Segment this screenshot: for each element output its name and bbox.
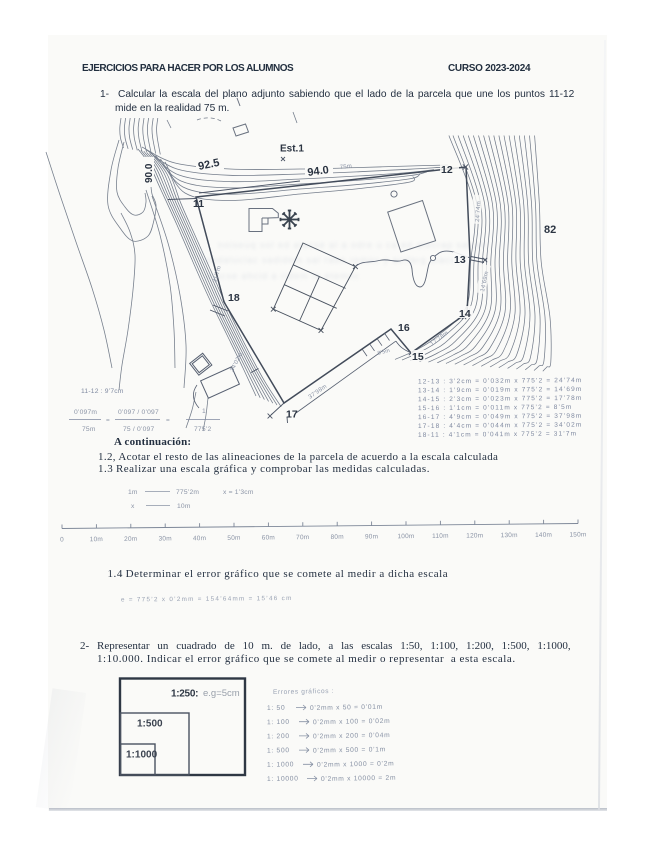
svg-text:14-15 : 2’3cm = 0’023m x 775’2: 14-15 : 2’3cm = 0’023m x 775’2 = 17’78m: [418, 395, 583, 403]
svg-text:Est.1: Est.1: [280, 144, 304, 155]
svg-text:Errores gráficos :: Errores gráficos :: [273, 688, 334, 696]
svg-text:60m: 60m: [262, 534, 275, 541]
svg-text:0’2mm x 1000 = 0’2m: 0’2mm x 1000 = 0’2m: [317, 760, 395, 768]
svg-text:80m: 80m: [330, 534, 343, 541]
svg-text:12: 12: [441, 164, 453, 176]
svg-text:150m: 150m: [569, 531, 586, 538]
svg-text:18: 18: [228, 292, 240, 304]
svg-text:24’74m: 24’74m: [475, 201, 482, 222]
svg-text:16-17 : 4’9cm = 0’049m x 775’2: 16-17 : 4’9cm = 0’049m x 775’2 = 37’98m: [418, 413, 583, 421]
svg-text:75m: 75m: [340, 164, 353, 171]
svg-text:=: =: [166, 417, 170, 424]
svg-text:20m: 20m: [124, 536, 137, 543]
svg-text:11-12 : 9’7cm: 11-12 : 9’7cm: [81, 388, 124, 395]
svg-text:31’7m: 31’7m: [212, 265, 223, 283]
svg-text:120m: 120m: [466, 532, 483, 539]
svg-text:0’2mm x 500 = 0’1m: 0’2mm x 500 = 0’1m: [313, 746, 386, 754]
svg-text:1:500: 1:500: [137, 719, 163, 730]
svg-text:18-11 : 4’1cm = 0’041m x 775’2: 18-11 : 4’1cm = 0’041m x 775’2 = 31’7m: [418, 431, 577, 439]
svg-text:10m: 10m: [90, 536, 103, 543]
svg-text:8’5m: 8’5m: [377, 348, 391, 357]
svg-text:15-16 : 1’1cm = 0’011m x 775’2: 15-16 : 1’1cm = 0’011m x 775’2 = 8’5m: [418, 404, 572, 412]
svg-text:e.g=5cm: e.g=5cm: [203, 688, 240, 699]
svg-text:11: 11: [193, 198, 204, 210]
svg-text:0’097 / 0’097: 0’097 / 0’097: [118, 409, 159, 416]
svg-text:0’2mm x 50 = 0’01m: 0’2mm x 50 = 0’01m: [310, 704, 383, 712]
svg-text:1: 50: 1: 50: [267, 705, 285, 712]
svg-text:1: 100: 1: 100: [267, 719, 290, 726]
svg-text:13-14 : 1’9cm = 0’019m x 775’2: 13-14 : 1’9cm = 0’019m x 775’2 = 14’69m: [418, 386, 583, 394]
svg-text:0’2mm x 100 = 0’02m: 0’2mm x 100 = 0’02m: [313, 718, 391, 726]
svg-text:0’097m: 0’097m: [74, 409, 97, 416]
svg-text:x = 1’3cm: x = 1’3cm: [223, 489, 254, 496]
svg-text:13: 13: [454, 254, 466, 266]
svg-text:1: 1: [202, 408, 206, 415]
svg-text:14: 14: [459, 308, 471, 320]
svg-text:100m: 100m: [397, 533, 414, 540]
svg-text:30m: 30m: [158, 535, 171, 542]
svg-text:40m: 40m: [193, 535, 206, 542]
svg-text:130m: 130m: [501, 532, 518, 539]
svg-text:82: 82: [544, 224, 556, 236]
svg-text:1: 1000: 1: 1000: [267, 761, 294, 768]
svg-text:90.0: 90.0: [144, 163, 155, 183]
svg-text:1:250:: 1:250:: [171, 689, 198, 700]
svg-text:775’2m: 775’2m: [176, 489, 199, 496]
svg-text:94.0: 94.0: [307, 164, 330, 179]
svg-text:e = 775’2 x 0’2mm = 154’64mm =: e = 775’2 x 0’2mm = 154’64mm = 15’46 cm: [121, 595, 293, 603]
svg-text:75 / 0’097: 75 / 0’097: [123, 426, 154, 433]
svg-text:1: 10000: 1: 10000: [267, 775, 299, 783]
svg-text:10m: 10m: [177, 503, 191, 510]
svg-text:50m: 50m: [227, 535, 240, 542]
svg-text:17: 17: [286, 409, 298, 421]
svg-text:=: =: [106, 417, 110, 424]
svg-text:90m: 90m: [365, 533, 378, 540]
svg-text:1:1000: 1:1000: [126, 750, 158, 761]
svg-text:75m: 75m: [82, 426, 96, 433]
svg-text:70m: 70m: [296, 534, 309, 541]
svg-text:17-18 : 4’4cm = 0’044m x 775’2: 17-18 : 4’4cm = 0’044m x 775’2 = 34’02m: [418, 422, 583, 430]
svg-text:15: 15: [412, 351, 424, 363]
svg-text:775’2: 775’2: [194, 426, 211, 433]
svg-text:0: 0: [60, 536, 64, 543]
svg-text:16: 16: [398, 322, 410, 334]
svg-text:1: 200: 1: 200: [267, 733, 290, 740]
svg-text:12-13 : 3’2cm = 0’032m x 775’2: 12-13 : 3’2cm = 0’032m x 775’2 = 24’74m: [418, 377, 583, 385]
svg-text:110m: 110m: [432, 533, 449, 540]
svg-text:0’2mm x 10000 = 2m: 0’2mm x 10000 = 2m: [321, 775, 396, 783]
svg-text:x: x: [131, 503, 135, 510]
svg-text:1: 500: 1: 500: [267, 747, 290, 754]
svg-text:140m: 140m: [535, 532, 552, 539]
svg-text:0’2mm x 200 = 0’04m: 0’2mm x 200 = 0’04m: [313, 732, 391, 740]
svg-text:1m: 1m: [128, 489, 138, 496]
